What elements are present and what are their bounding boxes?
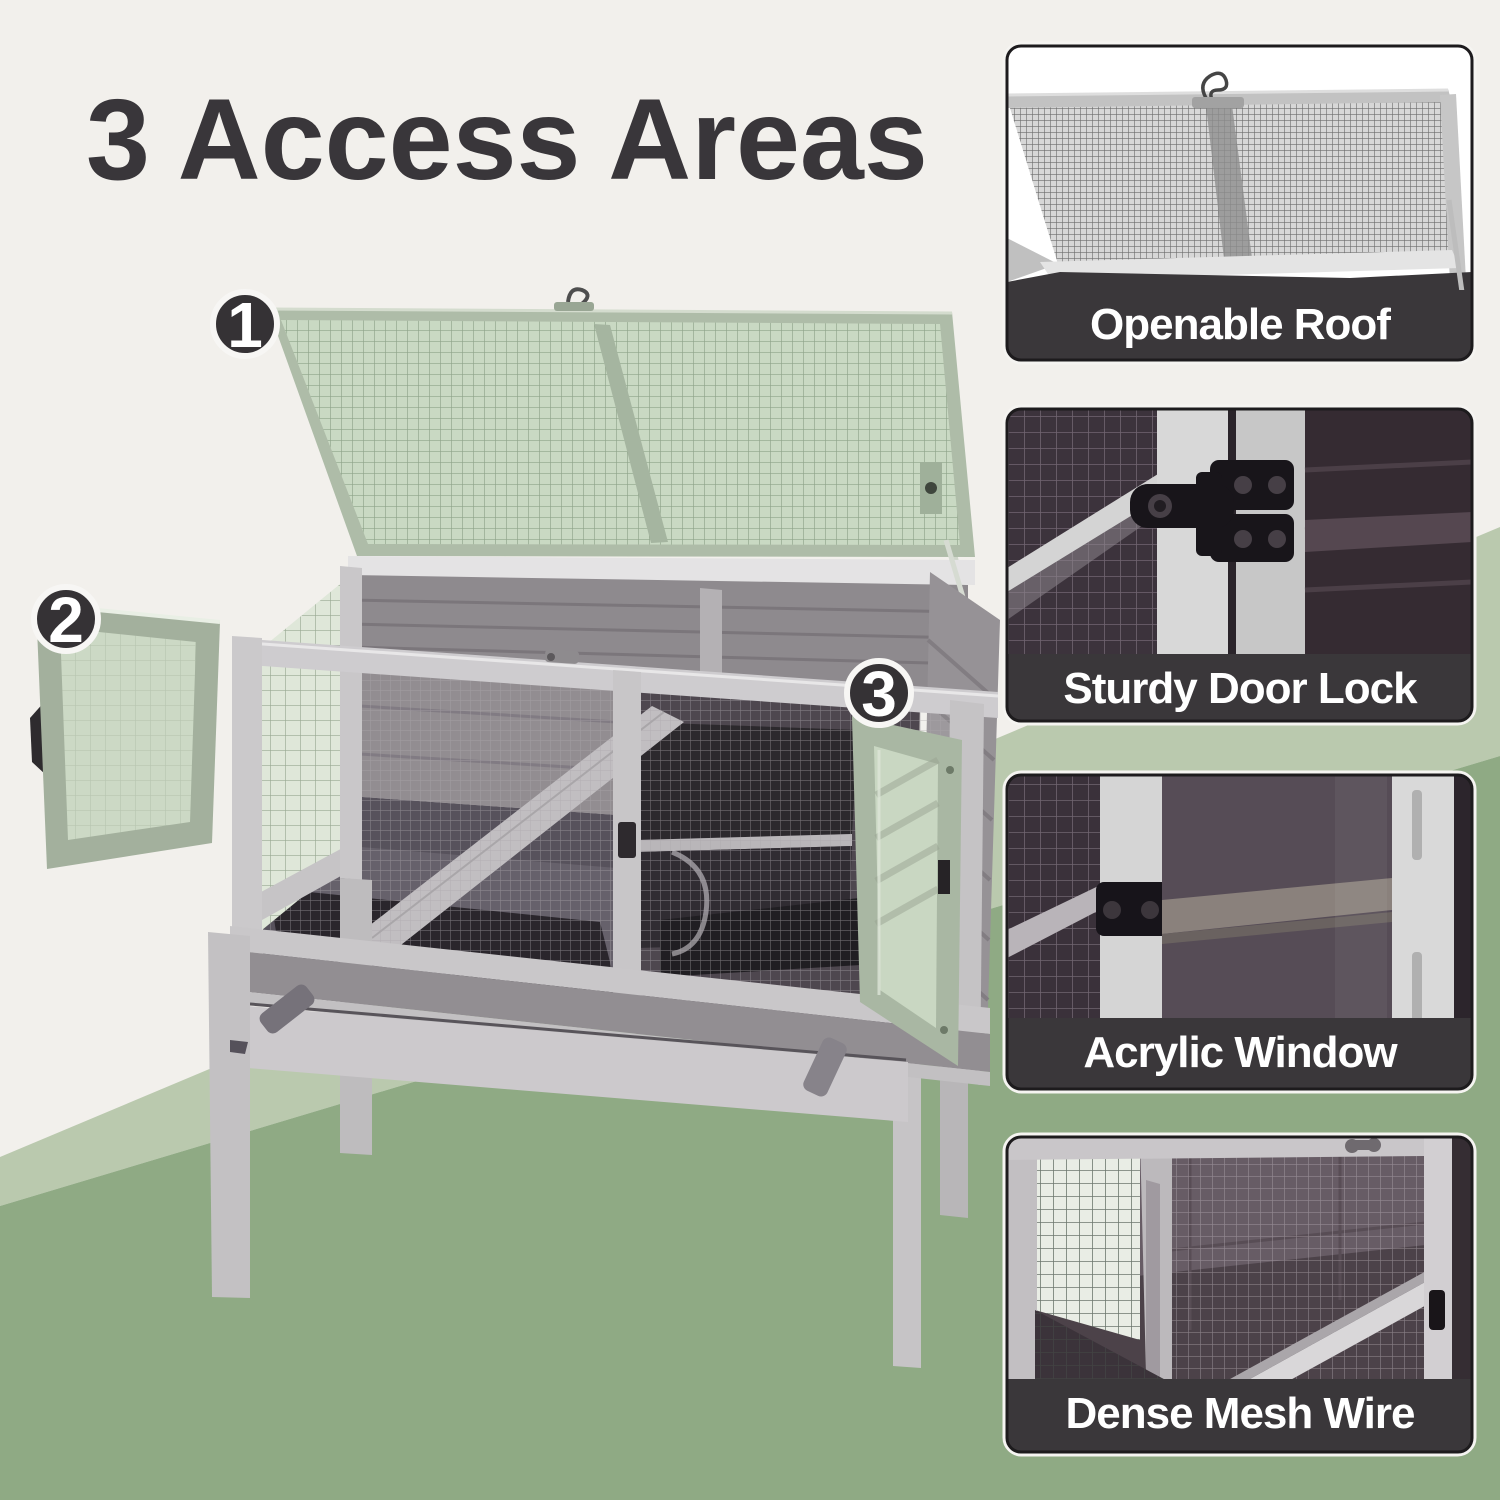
svg-text:3 Access Areas: 3 Access Areas [86,76,928,204]
svg-text:3: 3 [861,658,897,730]
svg-text:Sturdy Door Lock: Sturdy Door Lock [1063,664,1418,713]
svg-text:1: 1 [227,289,263,361]
svg-text:2: 2 [48,584,84,656]
svg-text:Openable Roof: Openable Roof [1090,300,1391,349]
svg-text:Acrylic Window: Acrylic Window [1083,1028,1398,1077]
svg-text:Dense Mesh Wire: Dense Mesh Wire [1066,1389,1415,1438]
